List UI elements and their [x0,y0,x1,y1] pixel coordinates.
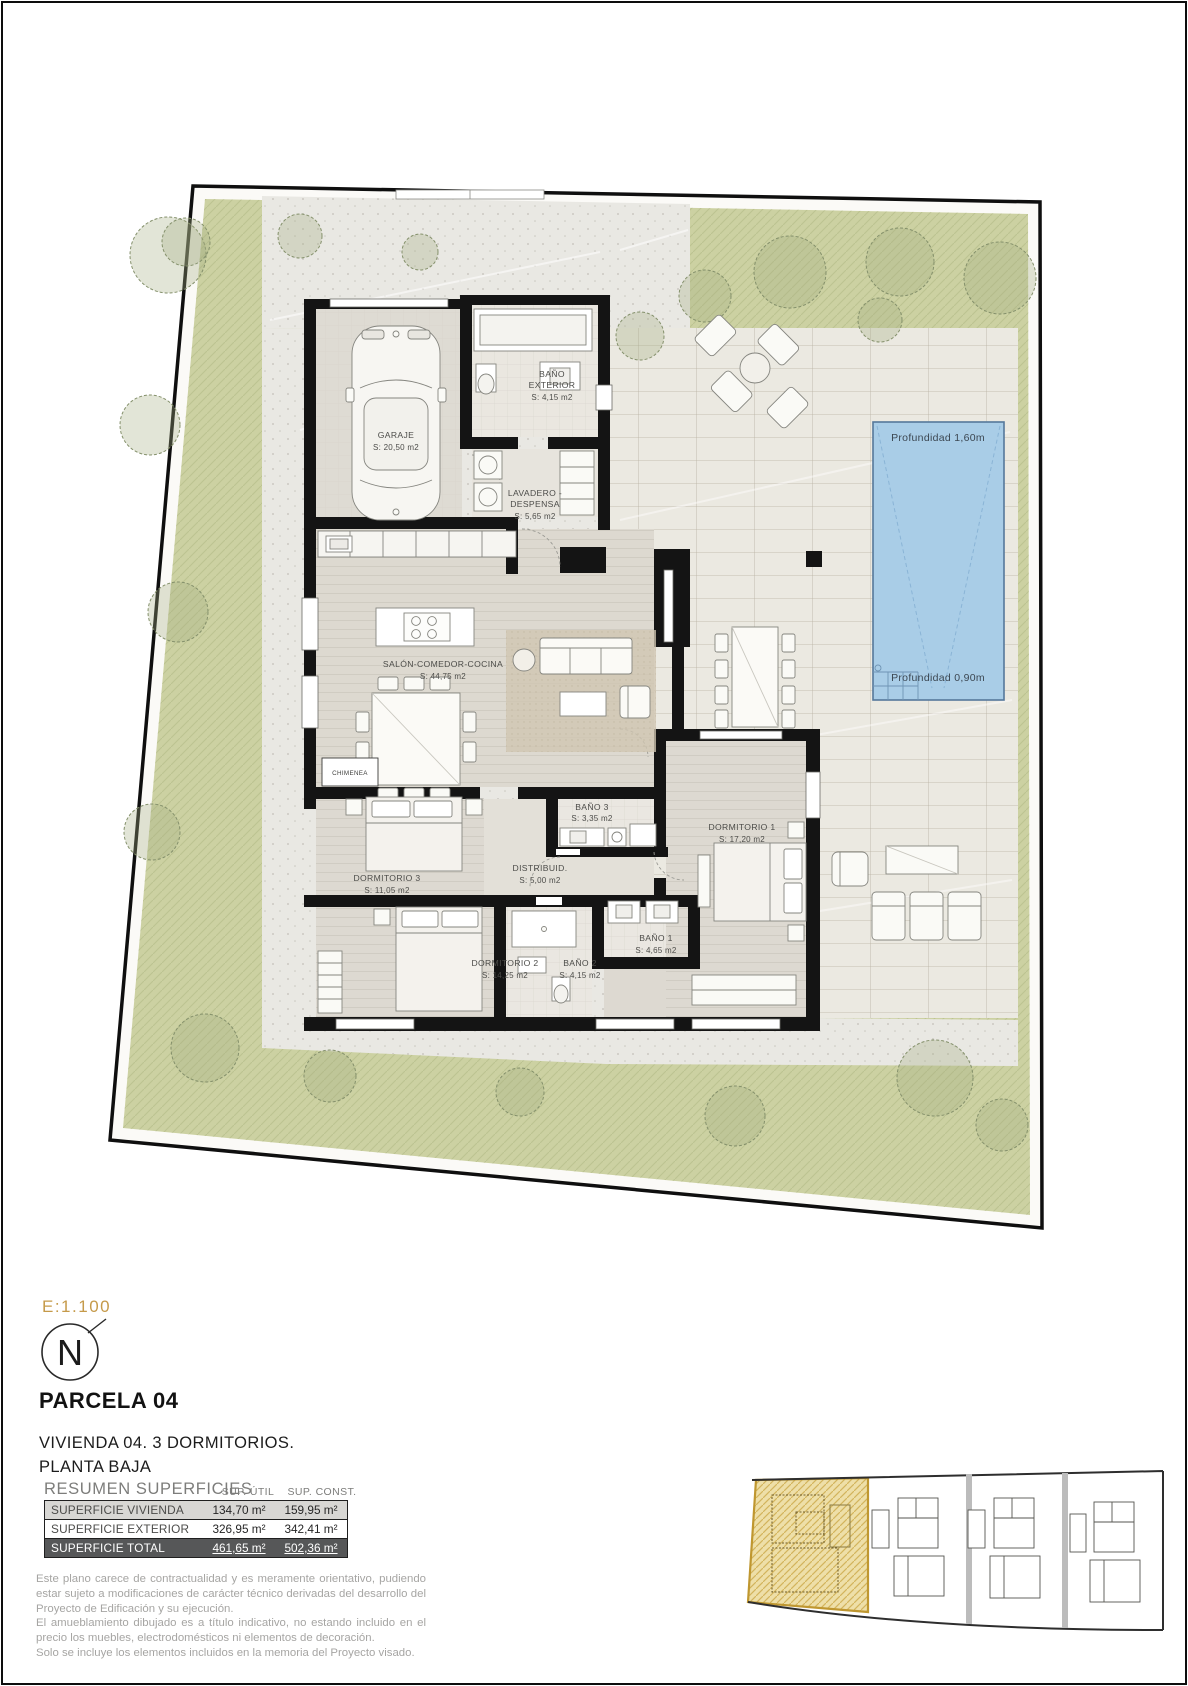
row-label: SUPERFICIE VIVIENDA [45,1503,203,1517]
summary-col-const: SUP. CONST. [284,1486,360,1498]
disclaimer-para3: Solo se incluye los elementos incluidos … [36,1646,426,1661]
table-row-vivienda: SUPERFICIE VIVIENDA 134,70 m² 159,95 m² [45,1501,347,1520]
north-arrow: N [42,1319,106,1380]
table-row-total: SUPERFICIE TOTAL 461,65 m² 502,36 m² [45,1539,347,1557]
disclaimer-para1: Este plano carece de contractualidad y e… [36,1572,426,1616]
subtitle-line1: VIVIENDA 04. 3 DORMITORIOS. [39,1432,294,1456]
row-util-value: 461,65 m² [203,1541,275,1555]
summary-header: RESUMEN SUPERFICIES SUP. ÚTIL SUP. CONST… [44,1480,364,1498]
row-util-value: 134,70 m² [203,1503,275,1517]
key-plan-group [748,1471,1163,1630]
disclaimer: Este plano carece de contractualidad y e… [36,1572,426,1661]
disclaimer-para2: El amueblamiento dibujado es a título in… [36,1616,426,1646]
summary-col-util: SUP. ÚTIL [212,1486,284,1498]
scale-label: E:1.100 [42,1297,111,1317]
row-label: SUPERFICIE EXTERIOR [45,1522,203,1536]
page-title: PARCELA 04 [39,1388,178,1414]
row-const-value: 159,95 m² [275,1503,347,1517]
table-row-exterior: SUPERFICIE EXTERIOR 326,95 m² 342,41 m² [45,1520,347,1539]
row-const-value: 502,36 m² [275,1541,347,1555]
row-label: SUPERFICIE TOTAL [45,1541,203,1555]
row-const-value: 342,41 m² [275,1522,347,1536]
subtitle: VIVIENDA 04. 3 DORMITORIOS. PLANTA BAJA [39,1432,294,1480]
row-util-value: 326,95 m² [203,1522,275,1536]
north-letter: N [57,1332,83,1373]
key-mini-plans [872,1498,1140,1602]
summary-table: SUPERFICIE VIVIENDA 134,70 m² 159,95 m² … [44,1500,348,1558]
subtitle-line2: PLANTA BAJA [39,1456,294,1480]
